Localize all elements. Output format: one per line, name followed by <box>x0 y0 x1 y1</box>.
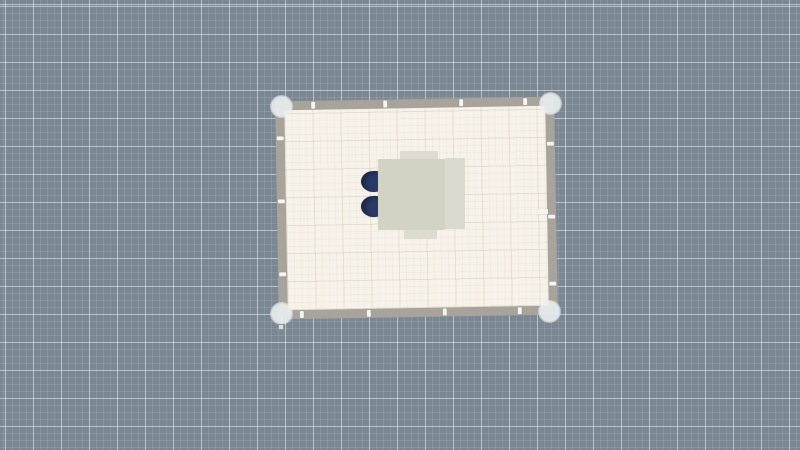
wall-tick-bottom[interactable] <box>443 308 447 315</box>
wall-tick-right[interactable] <box>549 282 556 286</box>
dining-table-extension[interactable] <box>445 158 465 229</box>
wall-tick-bottom[interactable] <box>518 307 522 314</box>
wall-tick-bottom[interactable] <box>367 310 371 317</box>
corner-handle-bottom-right[interactable] <box>538 300 561 323</box>
plan-canvas[interactable] <box>0 0 800 450</box>
chair-tucked-bottom[interactable] <box>404 230 437 239</box>
corner-handle-top-right[interactable] <box>539 92 562 115</box>
wall-marker[interactable] <box>538 209 548 214</box>
wall-tick-bottom[interactable] <box>300 311 304 318</box>
wall-tick-top[interactable] <box>523 98 527 105</box>
corner-handle-top-left[interactable] <box>270 95 293 118</box>
wall-tick-top[interactable] <box>383 100 387 107</box>
wall-tick-left[interactable] <box>278 199 285 203</box>
wall-tick-left[interactable] <box>279 272 286 276</box>
wall-tick-top[interactable] <box>311 102 315 109</box>
wall-tick-right[interactable] <box>548 215 555 219</box>
dining-table[interactable] <box>378 159 445 230</box>
wall-tick-left[interactable] <box>277 136 284 140</box>
wall-tick-right[interactable] <box>547 142 554 146</box>
wall-tick-top[interactable] <box>459 99 463 106</box>
corner-marker-icon[interactable] <box>278 324 284 330</box>
